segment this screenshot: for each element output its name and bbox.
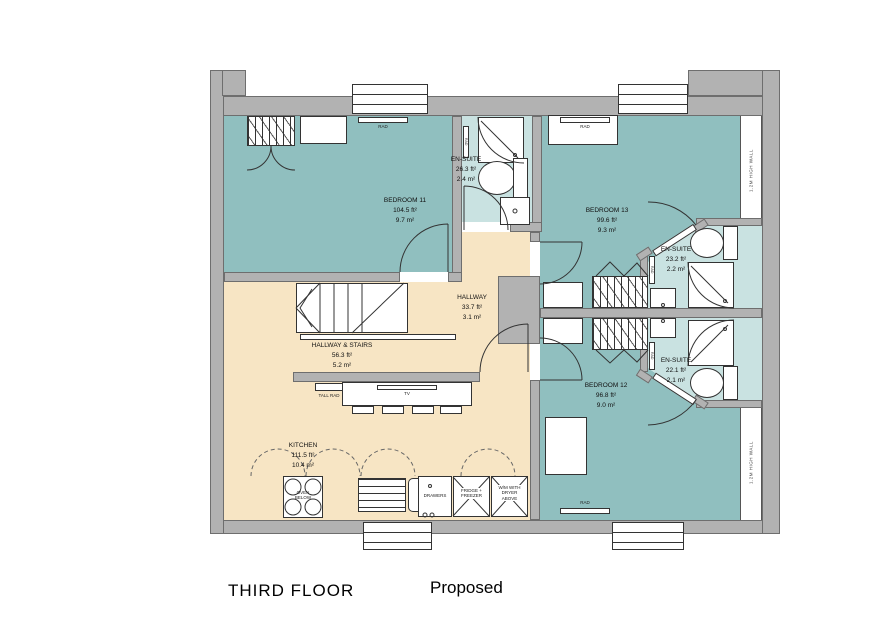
room-label-kitchen: KITCHEN 111.5 ft² 10.4 m² [258,441,348,471]
room-label-bedroom13: BEDROOM 13 99.6 ft² 9.3 m² [562,206,652,236]
room-area-ft: 22.1 ft² [631,366,721,376]
room-area-ft: 26.3 ft² [440,165,492,175]
room-area-ft: 104.5 ft² [360,206,450,216]
room-label-bedroom12: BEDROOM 12 96.8 ft² 9.0 m² [561,381,651,411]
door-arc-ensuite11 [464,186,508,230]
stair-arrow [300,289,312,327]
shower-drain-ensuite13 [724,300,727,303]
rad-label-bed12: RAD [560,500,610,505]
oven-label: OVEN BELOW [285,490,321,501]
rad-label-ensuite13: RAD [649,256,655,284]
floor-caption: THIRD FLOOR [228,581,354,601]
wardrobe11-door-arcs [247,146,295,170]
room-area-m: 3.1 m² [427,313,517,323]
door-arc-bed12 [540,338,582,380]
rad-label-ensuite11: RAD [463,126,469,158]
room-label-bedroom11: BEDROOM 11 104.5 ft² 9.7 m² [360,196,450,226]
drawers-label: DRAWERS [418,493,452,498]
room-name: EN-SUITE [631,245,721,255]
wm-dryer-label: W/M WITH DRYER ABOVE [492,485,527,501]
fridge-freezer-label: FRIDGE + FREEZER [454,488,489,499]
room-area-ft: 33.7 ft² [427,303,517,313]
room-area-m: 9.3 m² [562,226,652,236]
rad-label-ensuite12: RAD [649,342,655,370]
tall-rad-label: TALL RAD [295,393,363,398]
rad-label-bed13: RAD [560,124,610,129]
door-arc-bed13 [540,242,582,284]
basin-tap [662,320,665,323]
door-arc-ensuite13-entry [648,202,696,225]
sink-tap [423,513,427,517]
door-arc-ensuite12-entry [648,400,696,425]
hob-ring [285,499,301,515]
rad-label-bed11: RAD [358,124,408,129]
room-area-ft: 111.5 ft² [258,451,348,461]
sink-tap [429,485,432,488]
door-arc-bed11 [400,224,448,272]
room-name: HALLWAY [427,293,517,303]
room-name: EN-SUITE [631,356,721,366]
room-name: KITCHEN [258,441,348,451]
door-arc-kitchen [480,324,528,372]
room-area-m: 2.4 m² [440,175,492,185]
wardrobe-bifold-marks [596,262,648,363]
room-area-m: 2.2 m² [631,265,721,275]
floor-plan: 1.2M HIGH WALL 1.2M HIGH WALL [0,0,886,622]
hob-ring [305,499,321,515]
room-area-m: 9.0 m² [561,401,651,411]
room-area-ft: 56.3 ft² [297,351,387,361]
tv-label: TV [377,391,437,396]
room-area-ft: 99.6 ft² [562,216,652,226]
basin-tap [662,304,665,307]
shower-drain-ensuite12 [724,328,727,331]
room-area-ft: 23.2 ft² [631,255,721,265]
room-name: HALLWAY & STAIRS [297,341,387,351]
sink-tap [430,513,434,517]
status-caption: Proposed [430,578,503,598]
room-area-m: 5.2 m² [297,361,387,371]
room-area-m: 9.7 m² [360,216,450,226]
room-label-ensuite11: EN-SUITE 26.3 ft² 2.4 m² [440,155,492,185]
stair-treads [296,283,404,333]
room-area-m: 10.4 m² [258,461,348,471]
room-area-ft: 96.8 ft² [561,391,651,401]
room-label-ensuite13: EN-SUITE 23.2 ft² 2.2 m² [631,245,721,275]
room-name: BEDROOM 11 [360,196,450,206]
room-label-hallway: HALLWAY 33.7 ft² 3.1 m² [427,293,517,323]
basin-tap [513,209,517,213]
room-name: BEDROOM 12 [561,381,651,391]
room-label-hallway-stairs: HALLWAY & STAIRS 56.3 ft² 5.2 m² [297,341,387,371]
room-name: BEDROOM 13 [562,206,652,216]
